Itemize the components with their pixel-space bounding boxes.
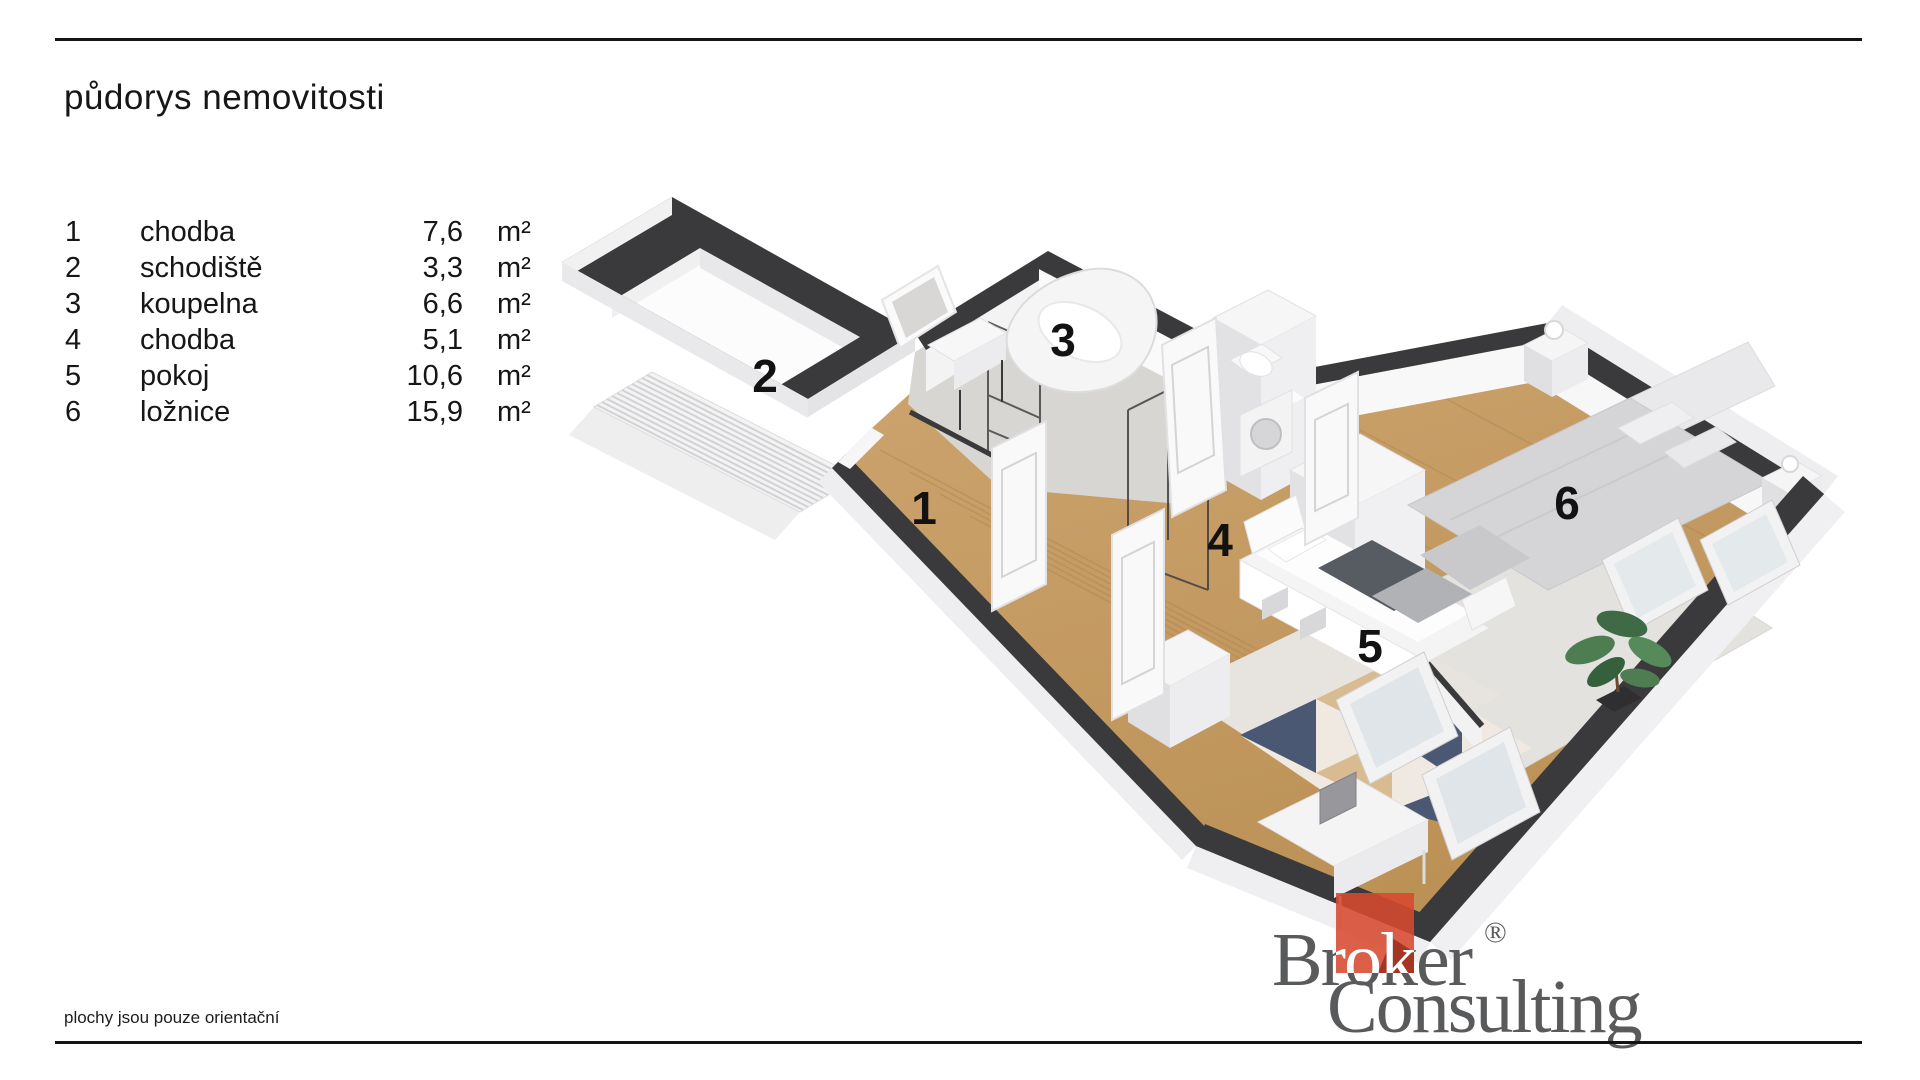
logo-registered-mark: ® (1484, 916, 1507, 949)
plan-label-6: 6 (1554, 477, 1580, 529)
floorplan-page: půdorys nemovitosti 1 chodba 7,6 m² 2 sc… (0, 0, 1920, 1080)
bottom-rule (55, 1041, 1862, 1044)
broker-consulting-logo: Broker Consulting ® Broker Consulting (1240, 860, 1900, 1060)
logo-word-2: Consulting (1327, 965, 1642, 1049)
disclaimer-note: plochy jsou pouze orientační (64, 1008, 279, 1028)
lamp-icon (1545, 321, 1563, 339)
plan-label-1: 1 (911, 482, 937, 534)
door (1305, 372, 1358, 545)
plan-label-2: 2 (752, 350, 778, 402)
stairwell (562, 197, 915, 418)
door (1112, 509, 1164, 720)
plan-label-4: 4 (1207, 514, 1233, 566)
bathroom-door (1162, 318, 1226, 517)
plan-label-5: 5 (1357, 620, 1383, 672)
door (992, 421, 1046, 611)
plan-label-3: 3 (1050, 314, 1076, 366)
lamp-icon (1782, 456, 1798, 472)
